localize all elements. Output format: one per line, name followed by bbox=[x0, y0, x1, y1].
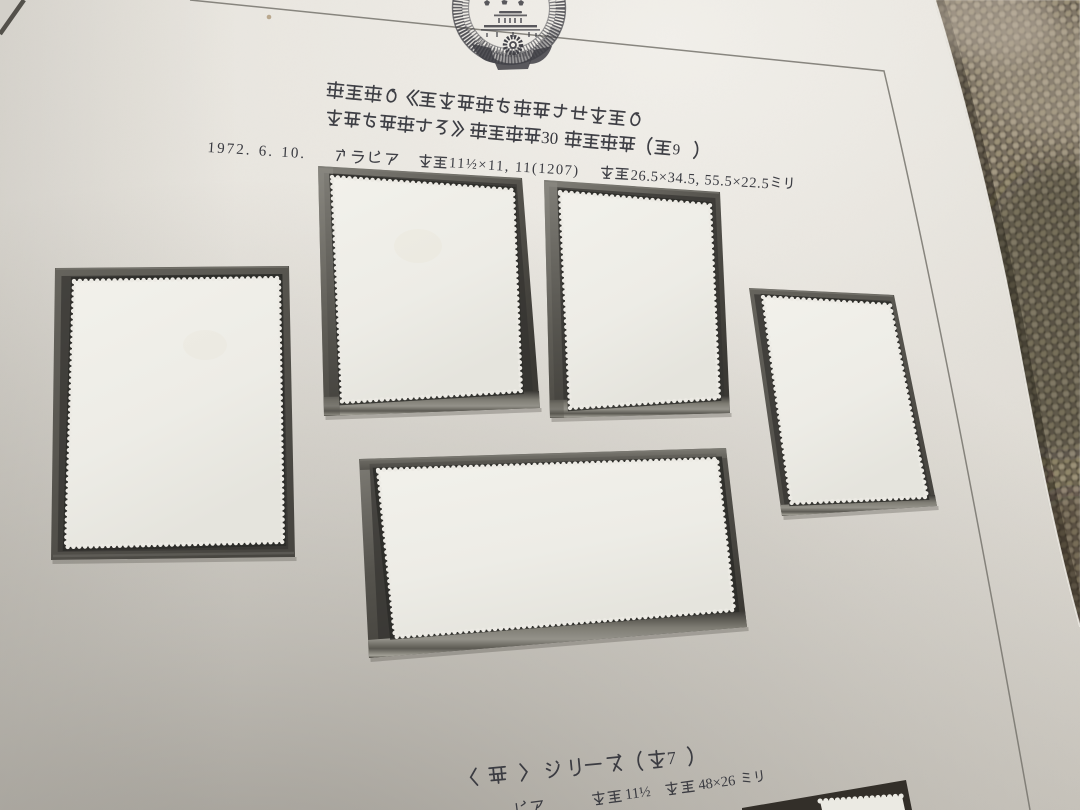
svg-text:11½: 11½ bbox=[624, 784, 652, 803]
svg-text:30: 30 bbox=[540, 128, 559, 148]
svg-text:9: 9 bbox=[672, 142, 681, 159]
svg-text:7: 7 bbox=[666, 748, 677, 769]
